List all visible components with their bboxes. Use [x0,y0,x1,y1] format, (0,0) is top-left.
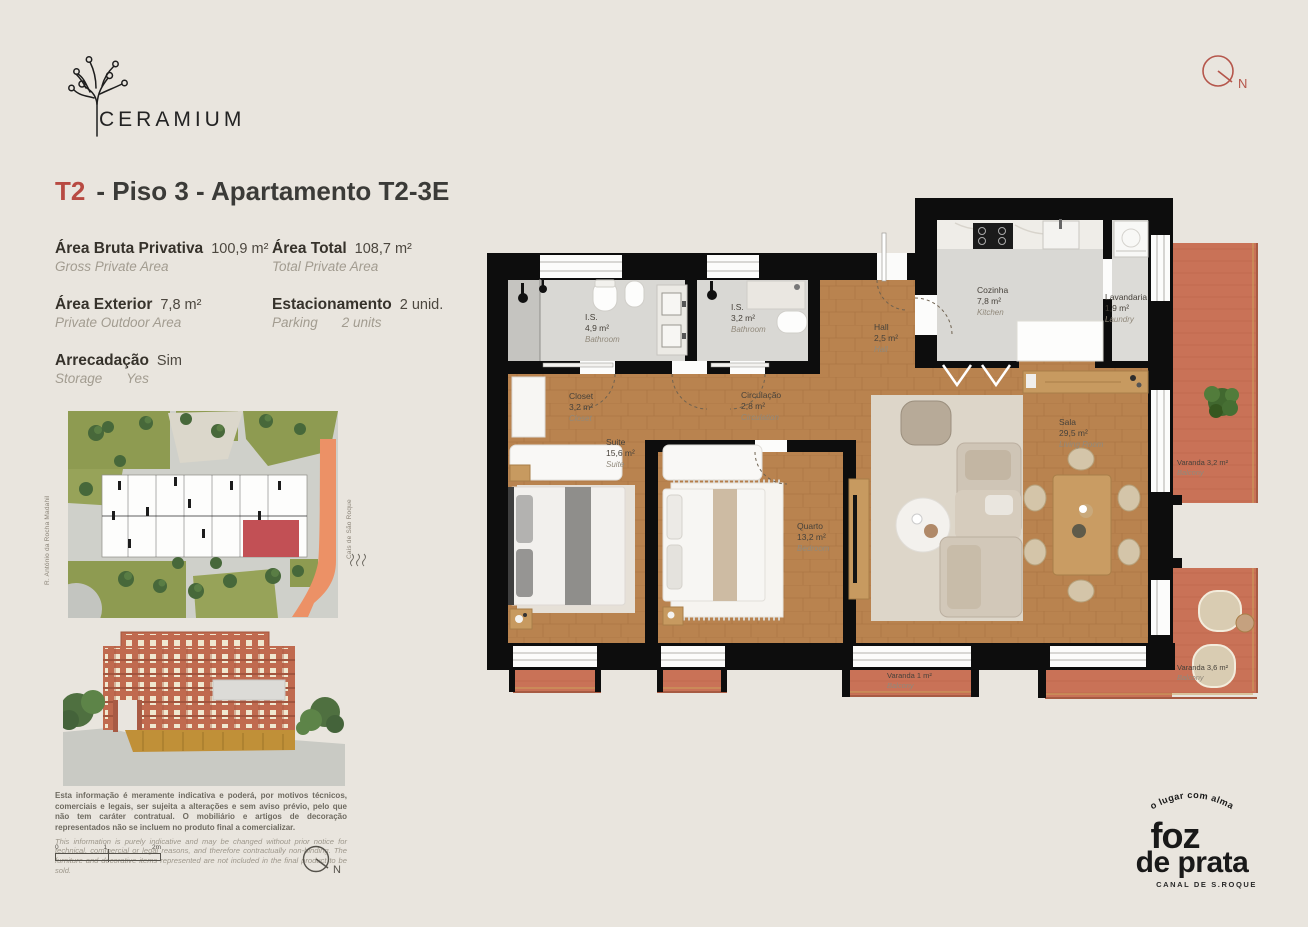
room-label-closet: Closet3,2 m²Closet [569,391,593,424]
north-label: N [1238,76,1247,91]
street-label-left: R. António da Rocha Madahil [44,467,51,585]
foz-logo-word2: de prata [1127,849,1257,876]
area-specs: Área Bruta Privativa100,9 m² Gross Priva… [55,240,495,386]
scale-bar: 0 1 2m [55,844,161,861]
street-label-right: Cais de São Roque [346,487,353,559]
room-label-balcony-3-6: Varanda 3,6 m²Balcony [1177,663,1228,683]
room-label-balcony-3-2: Varanda 3,2 m²Balcony [1177,458,1228,478]
room-label-bedroom: Quarto13,2 m²Bedroom [797,521,829,554]
spec-storage: ArrecadaçãoSim StorageYes [55,352,272,386]
spec-gross-private-area: Área Bruta Privativa100,9 m² Gross Priva… [55,240,272,274]
title-typology: T2 [55,176,85,206]
title-rest: - Piso 3 - Apartamento T2-3E [96,176,449,206]
room-label-bathroom-2: I.S.3,2 m²Bathroom [731,302,766,335]
building-elevation-drawing [63,624,345,786]
room-label-living-room: Sala29,5 m²Living Room [1059,417,1103,450]
foz-de-prata-logo: o lugar com alma foz de prata CANAL DE S… [1127,779,1257,889]
room-label-laundry: Lavandaria1,9 m²Laundry [1105,292,1147,325]
foz-logo-word1: foz [1127,822,1223,849]
room-label-kitchen: Cozinha7,8 m²Kitchen [977,285,1008,318]
room-label-balcony-1: Varanda 1 m²Balcony [887,671,932,691]
page-title: T2- Piso 3 - Apartamento T2-3E [55,176,449,207]
svg-text:o lugar com alma: o lugar com alma [1148,790,1235,811]
spec-parking: Estacionamento2 unid. Parking2 units [272,296,495,330]
bedroom-bed [663,481,783,625]
brochure-page: CERAMIUM N T2- Piso 3 - Apartamento T2-3… [0,0,1308,927]
north-compass-icon: N [1194,48,1266,100]
living-room-furniture [849,395,1023,621]
brand-name: CERAMIUM [99,108,245,132]
disclaimer-pt: Esta informação é meramente indicativa e… [55,791,347,834]
site-plan-map [68,411,338,618]
room-label-suite: Suite15,6 m²Suite [606,437,635,470]
floor-plan: I.S.4,9 m²Bathroom I.S.3,2 m²Bathroom Ha… [485,195,1260,705]
sideboard [1023,371,1148,393]
north-compass-bottom-icon: N [299,842,359,884]
laundry-fixtures [1114,221,1148,257]
room-label-circulation: Circulação2,8 m²Circulation [741,390,781,423]
spec-total-area: Área Total108,7 m² Total Private Area [272,240,495,274]
highlighted-unit [243,520,299,557]
north-label-bottom: N [333,864,341,876]
foz-logo-tagline-arc: o lugar com alma [1127,779,1257,817]
room-label-bathroom-1: I.S.4,9 m²Bathroom [585,312,620,345]
room-label-hall: Hall2,5 m²Hall [874,322,898,355]
spec-exterior-area: Área Exterior7,8 m² Private Outdoor Area [55,296,272,330]
suite-bed [508,465,635,629]
floor-plan-drawing [485,195,1260,705]
building-footprint [102,475,307,557]
water-waves-icon [344,552,370,570]
foz-logo-subtitle: CANAL DE S.ROQUE [1127,880,1257,889]
building [103,632,295,752]
